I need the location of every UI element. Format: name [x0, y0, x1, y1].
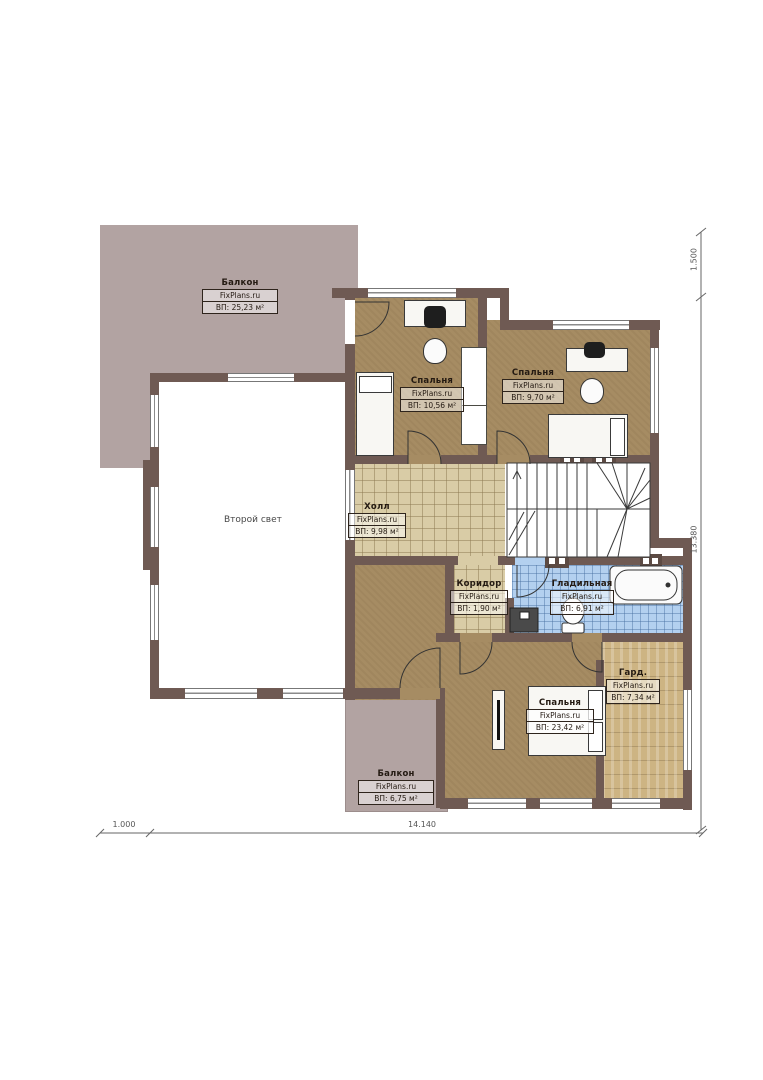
window: [553, 320, 629, 330]
room-name: Спальня: [526, 698, 594, 708]
room-name: Холл: [348, 502, 406, 512]
door-opening: [572, 633, 602, 642]
label-second-light: Второй свет: [224, 515, 282, 525]
closet: [461, 347, 487, 445]
label-bedroom-3: Спальня FixPlans.ru ВП: 23,42 м²: [526, 698, 594, 734]
bed: [356, 372, 394, 456]
door-opening: [458, 556, 498, 565]
chair: [424, 306, 446, 328]
room-area: ВП: 9,70 м²: [503, 392, 563, 403]
room-second-light: [155, 373, 355, 700]
office-chair: [423, 338, 447, 364]
brand: FixPlans.ru: [203, 290, 277, 302]
room-name: Балкон: [202, 278, 278, 288]
dimension-bottom-left: 1.000: [100, 820, 148, 829]
room-area: ВП: 6,91 м²: [551, 603, 613, 614]
window: [368, 288, 456, 298]
chair: [584, 342, 605, 358]
door-opening: [400, 688, 440, 699]
room-name: Коридор: [450, 579, 508, 589]
brand: FixPlans.ru: [527, 710, 593, 722]
label-hall: Холл FixPlans.ru ВП: 9,98 м²: [348, 502, 406, 538]
dimension-bottom: 14.140: [392, 820, 452, 829]
wall-pier: [545, 554, 569, 568]
brand: FixPlans.ru: [551, 591, 613, 603]
room-area: ВП: 1,90 м²: [451, 603, 507, 614]
brand: FixPlans.ru: [451, 591, 507, 603]
window: [650, 348, 659, 433]
window: [683, 690, 692, 770]
bed: [548, 414, 628, 458]
room-bedroom-3-lobe: [355, 565, 447, 700]
brand: FixPlans.ru: [503, 380, 563, 392]
label-bedroom-2: Спальня FixPlans.ru ВП: 9,70 м²: [502, 368, 564, 404]
dimension-top-right: 1.500: [690, 235, 699, 285]
brand: FixPlans.ru: [607, 680, 659, 692]
room-area: ВП: 6,75 м²: [359, 793, 433, 804]
room-name: Гладильная: [550, 579, 614, 589]
door-opening: [515, 556, 549, 565]
brand: FixPlans.ru: [349, 514, 405, 526]
door-opening: [497, 455, 530, 464]
label-balcony-bottom: Балкон FixPlans.ru ВП: 6,75 м²: [358, 769, 434, 805]
window: [283, 688, 343, 699]
window: [150, 585, 159, 640]
tv-stand: [492, 690, 505, 750]
label-wardrobe: Гард. FixPlans.ru ВП: 7,34 м²: [606, 668, 660, 704]
window: [150, 395, 159, 447]
label-corridor: Коридор FixPlans.ru ВП: 1,90 м²: [450, 579, 508, 615]
room-area: ВП: 10,56 м²: [401, 400, 463, 411]
room-name: Спальня: [502, 368, 564, 378]
label-bedroom-1: Спальня FixPlans.ru ВП: 10,56 м²: [400, 376, 464, 412]
room-wardrobe: [602, 638, 683, 803]
wall: [436, 697, 445, 808]
room-name: Спальня: [400, 376, 464, 386]
floor-plan: Балкон FixPlans.ru ВП: 25,23 м² Спальня …: [0, 0, 763, 1080]
window: [612, 798, 660, 809]
room-area: ВП: 9,98 м²: [349, 526, 405, 537]
office-chair: [580, 378, 604, 404]
room-name: Балкон: [358, 769, 434, 779]
brand: FixPlans.ru: [401, 388, 463, 400]
window: [540, 798, 592, 809]
window: [185, 688, 257, 699]
window: [228, 373, 294, 382]
label-ironing-room: Гладильная FixPlans.ru ВП: 6,91 м²: [550, 579, 614, 615]
door-opening: [460, 633, 492, 642]
window: [468, 798, 526, 809]
door-opening: [345, 300, 355, 344]
room-name: Гард.: [606, 668, 660, 678]
label-balcony-top: Балкон FixPlans.ru ВП: 25,23 м²: [202, 278, 278, 314]
room-area: ВП: 23,42 м²: [527, 722, 593, 733]
room-area: ВП: 7,34 м²: [607, 692, 659, 703]
dimension-right: 13.380: [690, 515, 699, 565]
brand: FixPlans.ru: [359, 781, 433, 793]
stairwell-floor: [505, 460, 653, 560]
door-opening: [408, 455, 441, 464]
wall-pier: [640, 554, 662, 568]
room-area: ВП: 25,23 м²: [203, 302, 277, 313]
window: [150, 487, 159, 547]
